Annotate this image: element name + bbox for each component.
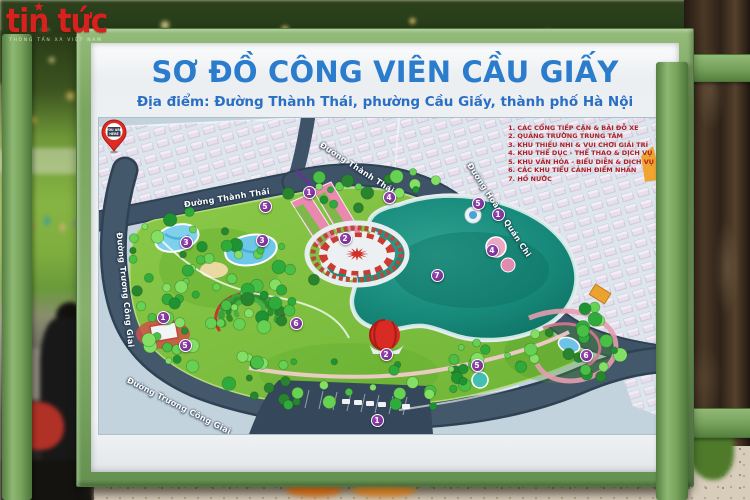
news-logo-text: tin tức (6, 4, 118, 40)
map-marker-4: 4 (486, 244, 499, 257)
map-marker-1: 1 (492, 208, 505, 221)
map-marker-1: 1 (371, 414, 384, 427)
you-are-here-pin: YOU ARE HERE (99, 118, 129, 154)
page-title: SƠ ĐỒ CÔNG VIÊN CẦU GIẤY (91, 43, 679, 89)
signboard-panel: SƠ ĐỒ CÔNG VIÊN CẦU GIẤY Địa điểm: Đường… (91, 43, 679, 472)
legend-item: 4. KHU THỂ DỤC - THỂ THAO & DỊCH VỤ (508, 149, 654, 157)
map-marker-3: 3 (180, 236, 193, 249)
map-legend: 1. CÁC CỔNG TIẾP CẬN & BÃI ĐỖ XE2. QUẢNG… (508, 124, 654, 183)
map-marker-6: 6 (290, 317, 303, 330)
map-marker-3: 3 (256, 234, 269, 247)
frame-post-left (2, 34, 32, 500)
photo-of-park-map-sign: SƠ ĐỒ CÔNG VIÊN CẦU GIẤY Địa điểm: Đường… (0, 0, 750, 500)
legend-item: 5. KHU VĂN HÓA - BIỂU DIỄN & DỊCH VỤ (508, 158, 654, 166)
pin-text-line2: HERE (109, 132, 118, 136)
legend-item: 6. CÁC KHU TIỂU CẢNH ĐIỂM NHẤN (508, 166, 654, 174)
map-marker-7: 7 (431, 269, 444, 282)
map-marker-5: 5 (471, 359, 484, 372)
map-marker-5: 5 (259, 200, 272, 213)
map-marker-4: 4 (383, 191, 396, 204)
distant-person (60, 223, 65, 232)
map-marker-1: 1 (303, 186, 316, 199)
map-marker-2: 2 (339, 232, 352, 245)
map-marker-2: 2 (380, 348, 393, 361)
legend-item: 7. HỒ NƯỚC (508, 175, 654, 183)
park-map: 1. CÁC CỔNG TIẾP CẬN & BÃI ĐỖ XE2. QUẢNG… (98, 117, 658, 435)
map-marker-5: 5 (472, 197, 485, 210)
board-subtitle: Địa điểm: Đường Thành Thái, phường Cầu G… (91, 89, 679, 110)
frame-post-right (656, 62, 688, 500)
news-logo: ★ tin tức THÔNG TẤN XÃ VIỆT NAM (6, 4, 116, 43)
parking-lot (249, 380, 433, 434)
distant-person (44, 216, 50, 226)
map-marker-1: 1 (157, 311, 170, 324)
map-marker-6: 6 (580, 349, 593, 362)
map-marker-5: 5 (179, 339, 192, 352)
park-map-signboard: SƠ ĐỒ CÔNG VIÊN CẦU GIẤY Địa điểm: Đường… (76, 28, 694, 487)
legend-item: 2. QUẢNG TRƯỜNG TRUNG TÂM (508, 132, 654, 140)
